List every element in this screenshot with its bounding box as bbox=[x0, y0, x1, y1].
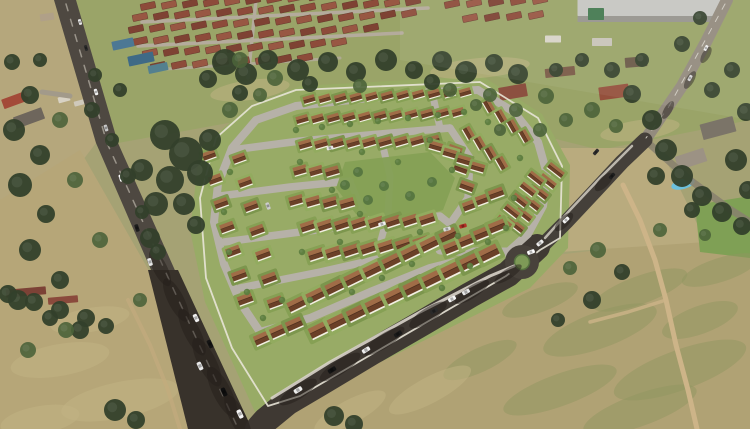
aerial-photo bbox=[0, 0, 750, 429]
aerial-photo-stage bbox=[0, 0, 750, 429]
